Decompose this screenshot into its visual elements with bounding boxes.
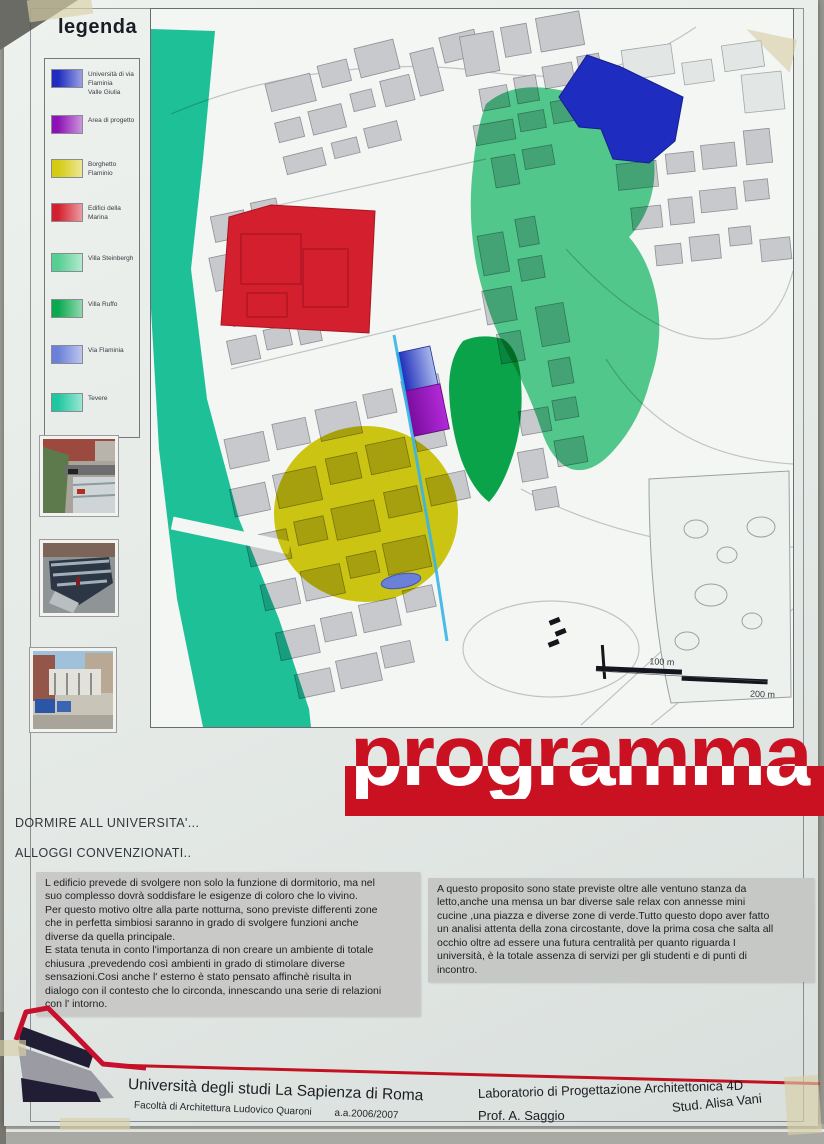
legend-row: Via Flaminia: [51, 345, 135, 385]
legend-photo-market-street: [30, 648, 116, 732]
legend-swatch-flaminia: [51, 345, 83, 364]
tape-left-lower: [0, 1040, 26, 1056]
legend-box: Università di via FlaminiaValle Giulia A…: [44, 58, 140, 438]
legend-swatch-borghetto: [51, 159, 83, 178]
legend-row: Borghetto Flaminio: [51, 159, 135, 199]
legend-row: Tevere: [51, 393, 135, 433]
legend-swatch-ruffo: [51, 299, 83, 318]
legend-label: Villa Steinbergh: [88, 255, 138, 264]
legend-row: Edifici della Marina: [51, 203, 135, 243]
legend-swatch-progetto: [51, 115, 83, 134]
legend-photo-market-roof: [40, 540, 118, 616]
scale-label-100: 100 m: [649, 656, 674, 667]
map-region-borghetto: [274, 426, 458, 602]
legend-swatch-tevere: [51, 393, 83, 412]
legend-swatch-marina: [51, 203, 83, 222]
legend-swatch-universita: [51, 69, 83, 88]
legend-photo-market-aerial: [40, 436, 118, 516]
intro-line-dormire: DORMIRE ALL UNIVERSITA'...: [15, 816, 199, 830]
legend-row: Area di progetto: [51, 115, 135, 155]
legend-label: Via Flaminia: [88, 347, 138, 356]
legend-swatch-steinbergh: [51, 253, 83, 272]
map-park-outlines: [649, 471, 791, 703]
legend-label: Villa Ruffo: [88, 301, 138, 310]
legend-label: Area di progetto: [88, 117, 138, 126]
legend-label: Borghetto Flaminio: [88, 161, 138, 179]
legend-label: Edifici della Marina: [88, 205, 138, 223]
intro-line-alloggi: ALLOGGI CONVENZIONATI..: [15, 846, 191, 860]
legend-title: legenda: [58, 16, 137, 39]
lab-logo: [6, 996, 146, 1108]
programma-title: programma programma: [350, 712, 824, 842]
legend-label: Tevere: [88, 395, 138, 404]
map-drawing: 100 m 200 m: [151, 9, 793, 727]
legend-label: Università di via Flaminia: [88, 71, 134, 87]
footer-professor: Prof. A. Saggio: [478, 1108, 565, 1123]
map-region-marina: [221, 205, 375, 333]
tape-bottom-right: [784, 1075, 822, 1135]
legend-row: Università di via FlaminiaValle Giulia: [51, 69, 135, 109]
tape-bottom-left: [60, 1118, 130, 1130]
site-plan-map: 100 m 200 m: [150, 8, 794, 728]
scale-label-200: 200 m: [750, 689, 775, 700]
legend-label-2: Valle Giulia: [88, 89, 120, 96]
paragraph-right: A questo proposito sono state previste o…: [428, 878, 814, 982]
paragraph-left: L edificio prevede di svolgere non solo …: [36, 872, 420, 1016]
legend-row: Villa Ruffo: [51, 299, 135, 339]
legend-row: Villa Steinbergh: [51, 253, 135, 293]
